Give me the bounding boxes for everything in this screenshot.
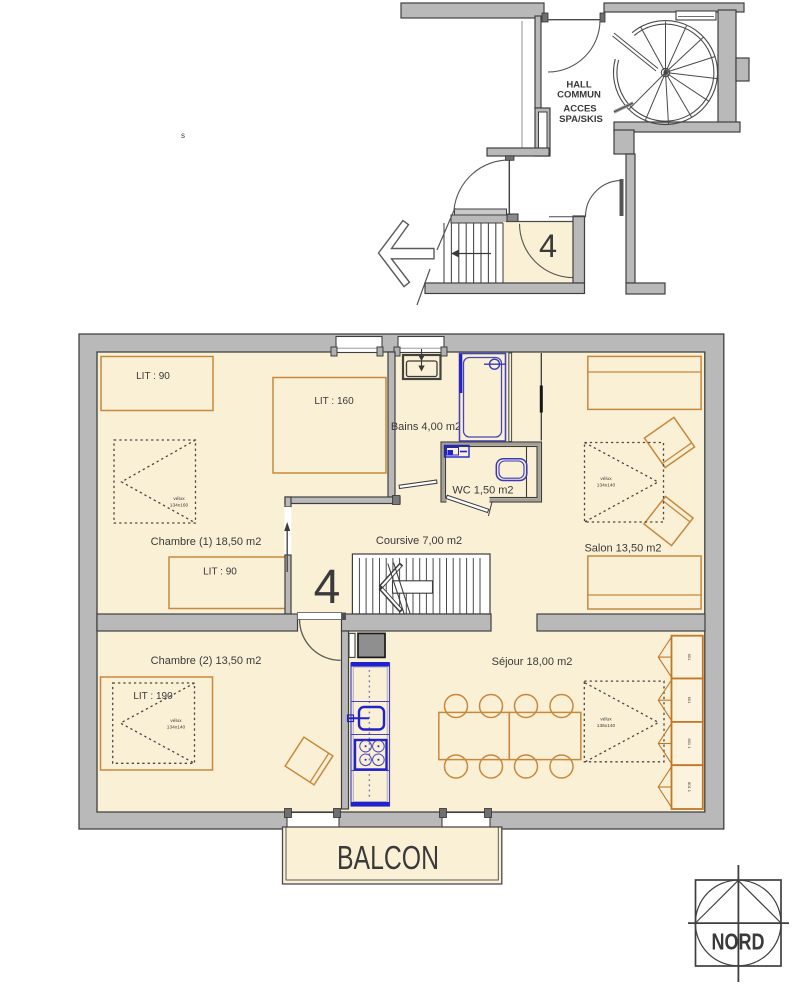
svg-text:vélux: vélux: [170, 718, 182, 724]
svg-text:601: 601: [687, 697, 692, 704]
svg-text:136x140: 136x140: [597, 723, 616, 729]
svg-text:SPA/SKIS: SPA/SKIS: [559, 114, 603, 125]
svg-text:LIT : 190: LIT : 190: [133, 691, 173, 702]
svg-text:vélux: vélux: [600, 476, 612, 482]
svg-text:801 1: 801 1: [687, 782, 692, 793]
svg-text:Salon 13,50 m2: Salon 13,50 m2: [584, 543, 661, 555]
svg-text:WC 1,50 m2: WC 1,50 m2: [452, 485, 513, 497]
svg-text:NORD: NORD: [712, 929, 765, 955]
svg-text:s: s: [181, 131, 185, 140]
svg-text:134x140: 134x140: [597, 483, 616, 489]
svg-text:LIT : 90: LIT : 90: [136, 371, 170, 382]
svg-text:ACCES: ACCES: [563, 104, 596, 115]
svg-text:801 1: 801 1: [687, 738, 692, 749]
svg-text:LIT : 90: LIT : 90: [203, 567, 237, 578]
svg-text:BALCON: BALCON: [337, 839, 439, 876]
svg-text:134x160: 134x160: [170, 503, 189, 509]
svg-text:vélux: vélux: [173, 496, 185, 502]
svg-text:601: 601: [687, 654, 692, 661]
svg-text:Bains 4,00 m2: Bains 4,00 m2: [391, 421, 461, 433]
svg-text:4: 4: [314, 561, 341, 614]
svg-text:LIT : 160: LIT : 160: [314, 396, 354, 407]
svg-text:COMMUN: COMMUN: [557, 90, 601, 101]
svg-text:Chambre (1) 18,50 m2: Chambre (1) 18,50 m2: [151, 536, 262, 548]
svg-text:Séjour 18,00 m2: Séjour 18,00 m2: [492, 656, 573, 668]
svg-text:Coursive 7,00 m2: Coursive 7,00 m2: [376, 535, 462, 547]
svg-text:Chambre (2) 13,50 m2: Chambre (2) 13,50 m2: [151, 655, 262, 667]
svg-text:134x140: 134x140: [167, 725, 186, 731]
svg-text:vélux: vélux: [600, 717, 612, 723]
svg-text:4: 4: [539, 228, 557, 264]
